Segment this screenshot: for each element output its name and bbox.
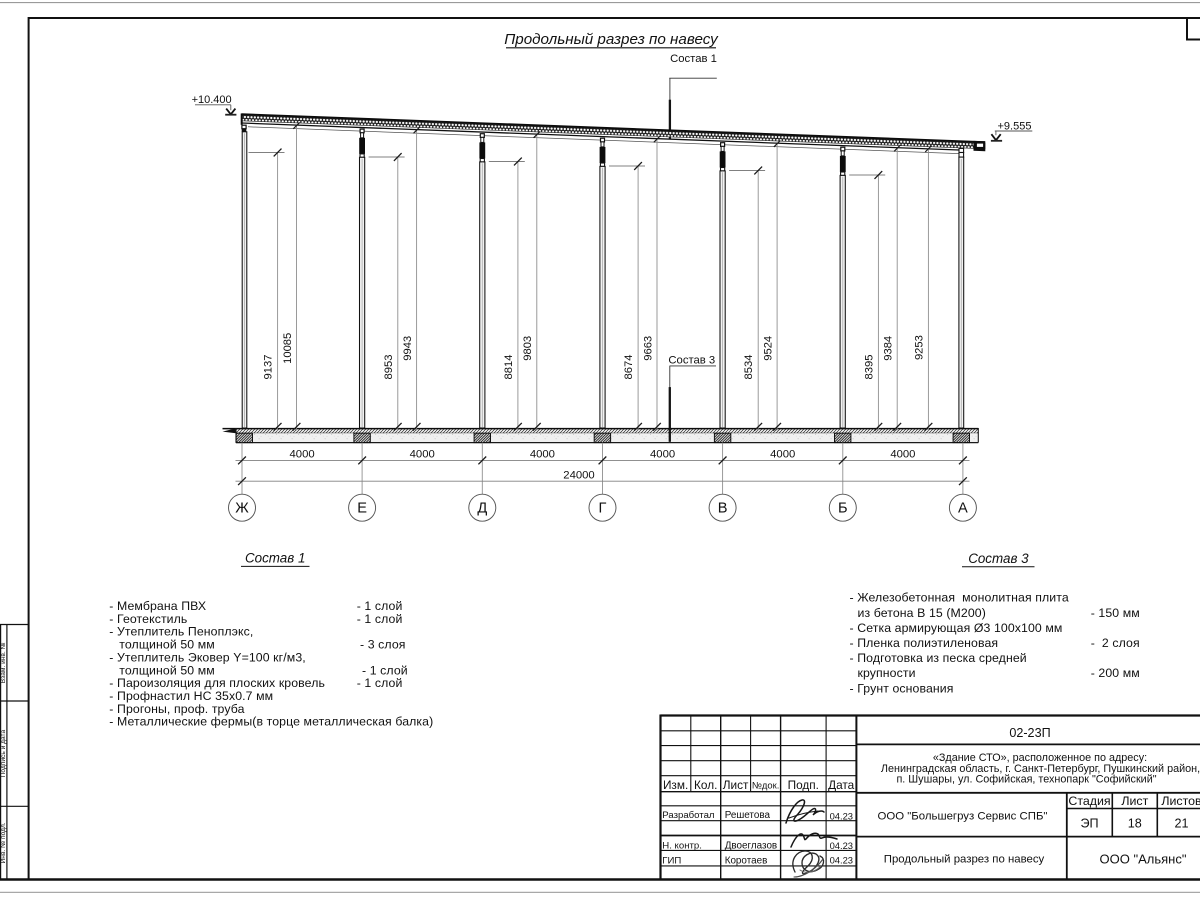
svg-text:9663: 9663 [642, 336, 654, 361]
svg-text:ООО "Большегруз Сервис СПБ": ООО "Большегруз Сервис СПБ" [878, 810, 1048, 822]
svg-text:В: В [718, 501, 728, 517]
svg-text:Б: Б [838, 501, 848, 517]
svg-text:А: А [958, 501, 968, 517]
svg-text:04.23: 04.23 [830, 854, 853, 865]
svg-text:8814: 8814 [503, 355, 515, 380]
svg-text:8953: 8953 [383, 355, 395, 380]
svg-text:Состав 1: Состав 1 [670, 53, 717, 65]
svg-text:- Грунт основания: - Грунт основания [850, 681, 954, 695]
svg-text:ЭП: ЭП [1080, 817, 1098, 831]
svg-text:- 1 слой: - 1 слой [357, 676, 403, 690]
svg-text:Д: Д [477, 501, 487, 517]
svg-text:9943: 9943 [402, 336, 414, 361]
svg-text:Инв. № подл.: Инв. № подл. [0, 822, 7, 863]
svg-text:Разработал: Разработал [662, 810, 714, 821]
svg-text:из бетона В 15 (М200): из бетона В 15 (М200) [858, 606, 986, 620]
svg-text:04.23: 04.23 [830, 840, 853, 851]
svg-text:Решетова: Решетова [725, 810, 771, 821]
svg-text:4000: 4000 [290, 448, 315, 460]
svg-text:9137: 9137 [263, 355, 275, 380]
svg-text:4000: 4000 [770, 448, 795, 460]
svg-text:Лист: Лист [723, 778, 749, 792]
svg-text:Лист: Лист [1121, 794, 1148, 808]
svg-text:- 1 слой: - 1 слой [357, 599, 403, 613]
svg-text:+10.400: +10.400 [192, 94, 232, 106]
svg-text:- Пароизоляция для плоских кро: - Пароизоляция для плоских кровель [109, 676, 325, 690]
svg-text:Состав 3: Состав 3 [668, 354, 715, 366]
svg-text:Продольный разрез по навесу: Продольный разрез по навесу [884, 853, 1045, 865]
svg-text:Кол.: Кол. [694, 778, 717, 792]
svg-text:9253: 9253 [913, 335, 925, 360]
svg-text:Подпись и дата: Подпись и дата [0, 730, 7, 778]
svg-text:Состав 3: Состав 3 [968, 551, 1029, 566]
svg-text:- Утеплитель Пеноплэкс,: - Утеплитель Пеноплэкс, [109, 625, 253, 639]
svg-text:Н. контр.: Н. контр. [662, 840, 702, 851]
svg-text:18: 18 [1128, 817, 1142, 831]
svg-text:Коротаев: Коротаев [725, 856, 768, 867]
svg-text:Листов: Листов [1161, 794, 1200, 808]
svg-text:Подп.: Подп. [788, 778, 819, 792]
svg-text:9384: 9384 [883, 336, 895, 361]
svg-text:4000: 4000 [650, 448, 675, 460]
svg-text:- Прогоны, проф. труба: - Прогоны, проф. труба [109, 702, 244, 716]
svg-text:- Железобетонная монолитная п: - Железобетонная монолитная плита [850, 591, 1069, 605]
svg-text:9803: 9803 [522, 336, 534, 361]
svg-text:крупности: крупности [858, 666, 916, 680]
svg-text:24000: 24000 [563, 469, 594, 481]
svg-text:ГИП: ГИП [662, 856, 681, 867]
svg-text:4000: 4000 [890, 448, 915, 460]
svg-text:Продольный разрез по навесу: Продольный разрез по навесу [504, 31, 719, 48]
svg-text:- Утеплитель Эковер Y=100 кг/м: - Утеплитель Эковер Y=100 кг/м3, [109, 650, 305, 664]
svg-text:- Сетка армирующая Ø3 100х100: - Сетка армирующая Ø3 100х100 мм [850, 621, 1063, 635]
svg-text:Дата: Дата [828, 778, 855, 792]
svg-text:Двоеглазов: Двоеглазов [725, 840, 778, 851]
svg-text:8534: 8534 [743, 355, 755, 380]
svg-text:Стадия: Стадия [1068, 794, 1110, 808]
svg-text:8395: 8395 [863, 355, 875, 380]
svg-text:Ж: Ж [235, 501, 249, 517]
svg-text:- Пленка полиэтиленовая: - Пленка полиэтиленовая [850, 636, 999, 650]
svg-text:4000: 4000 [410, 448, 435, 460]
svg-text:- 3 слоя: - 3 слоя [357, 638, 406, 652]
svg-text:- 150 мм: - 150 мм [1091, 606, 1140, 620]
svg-text:Состав 1: Состав 1 [245, 551, 305, 566]
svg-text:4000: 4000 [530, 448, 555, 460]
svg-text:Г: Г [599, 501, 607, 517]
svg-text:Взам. инв. №: Взам. инв. № [0, 642, 7, 683]
svg-text:п. Шушары, ул. Софийская, техн: п. Шушары, ул. Софийская, технопарк "Соф… [896, 774, 1156, 786]
svg-text:- 1 слой: - 1 слой [357, 612, 403, 626]
svg-text:Изм.: Изм. [663, 778, 688, 792]
svg-text:Е: Е [357, 501, 367, 517]
svg-text:- 2 слоя: - 2 слоя [1091, 636, 1140, 650]
svg-text:ООО "Альянс": ООО "Альянс" [1100, 852, 1187, 867]
svg-text:9524: 9524 [763, 336, 775, 361]
svg-text:10085: 10085 [282, 333, 294, 364]
svg-text:8674: 8674 [623, 355, 635, 380]
svg-text:- Мембрана ПВХ: - Мембрана ПВХ [109, 599, 206, 613]
svg-text:02-23П: 02-23П [1009, 726, 1050, 740]
svg-text:21: 21 [1174, 817, 1188, 831]
svg-text:- 200 мм: - 200 мм [1091, 666, 1140, 680]
svg-text:- Металлические фермы(в торце: - Металлические фермы(в торце металличес… [109, 715, 433, 729]
svg-text:№док.: №док. [752, 780, 779, 791]
svg-text:- Подготовка из песка средней: - Подготовка из песка средней [850, 651, 1027, 665]
svg-text:04.23: 04.23 [830, 811, 853, 822]
